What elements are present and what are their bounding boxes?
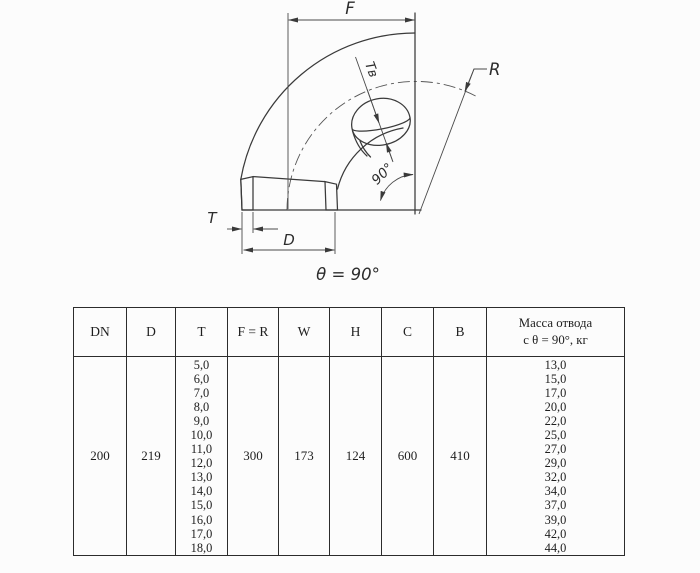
list-item: 39,0 [487, 513, 624, 527]
elbow-drawing: F R T D Tв 90° θ = 90° [0, 0, 700, 295]
left-wall-section [241, 177, 253, 210]
col-header-c: C [382, 308, 434, 357]
f-dimension-label: F [345, 0, 355, 18]
list-item: 6,0 [176, 372, 227, 386]
col-header-b: B [434, 308, 487, 357]
list-item: 22,0 [487, 414, 624, 428]
tv-arrow-upper [367, 89, 379, 123]
outer-arc [241, 33, 415, 179]
d-dimension-label: D [283, 231, 295, 249]
dimensions-table: DN D T F = R W H C B Масса отвода с θ = … [73, 307, 625, 556]
cell-d: 219 [127, 357, 176, 556]
elbow-spec-sheet: F R T D Tв 90° θ = 90° [0, 0, 700, 573]
list-item: 37,0 [487, 498, 624, 512]
stub-top-edge [253, 177, 325, 182]
list-item: 13,0 [487, 358, 624, 372]
table-row: 200 219 5,06,07,08,09,010,011,012,013,01… [74, 357, 625, 556]
list-item: 13,0 [176, 470, 227, 484]
list-item: 17,0 [487, 386, 624, 400]
list-item: 11,0 [176, 442, 227, 456]
col-header-dn: DN [74, 308, 127, 357]
list-item: 27,0 [487, 442, 624, 456]
t-dimension-label: T [207, 209, 218, 227]
cell-t-values: 5,06,07,08,09,010,011,012,013,014,015,01… [176, 357, 228, 556]
tv-dimension-label: Tв [361, 60, 380, 80]
col-header-h: H [330, 308, 382, 357]
list-item: 20,0 [487, 400, 624, 414]
cell-dn: 200 [74, 357, 127, 556]
col-header-fr: F = R [228, 308, 279, 357]
list-item: 7,0 [176, 386, 227, 400]
list-item: 14,0 [176, 484, 227, 498]
mass-header-line2: с θ = 90°, кг [487, 332, 624, 349]
list-item: 29,0 [487, 456, 624, 470]
list-item: 12,0 [176, 456, 227, 470]
list-item: 5,0 [176, 358, 227, 372]
header-row: DN D T F = R W H C B Масса отвода с θ = … [74, 308, 625, 357]
list-item: 18,0 [176, 541, 227, 555]
list-item: 9,0 [176, 414, 227, 428]
list-item: 8,0 [176, 400, 227, 414]
list-item: 44,0 [487, 541, 624, 555]
list-item: 32,0 [487, 470, 624, 484]
cell-fr: 300 [228, 357, 279, 556]
list-item: 16,0 [176, 513, 227, 527]
theta-caption: θ = 90° [316, 265, 380, 284]
elbow-geometry [241, 13, 476, 214]
col-header-mass: Масса отвода с θ = 90°, кг [487, 308, 625, 357]
list-item: 42,0 [487, 527, 624, 541]
r-leader-line [419, 69, 487, 214]
cell-b: 410 [434, 357, 487, 556]
t-values-list: 5,06,07,08,09,010,011,012,013,014,015,01… [176, 357, 227, 555]
list-item: 34,0 [487, 484, 624, 498]
r-leader-arrow [465, 69, 474, 91]
angle-label: 90° [369, 160, 397, 188]
cell-mass-values: 13,015,017,020,022,025,027,029,032,034,0… [487, 357, 625, 556]
col-header-d: D [127, 308, 176, 357]
mass-values-list: 13,015,017,020,022,025,027,029,032,034,0… [487, 357, 624, 555]
list-item: 15,0 [176, 498, 227, 512]
list-item: 15,0 [487, 372, 624, 386]
tv-arrow-lower [386, 143, 392, 161]
cell-w: 173 [279, 357, 330, 556]
list-item: 17,0 [176, 527, 227, 541]
list-item: 25,0 [487, 428, 624, 442]
mass-header-line1: Масса отвода [487, 315, 624, 332]
r-dimension-label: R [489, 60, 500, 79]
cell-h: 124 [330, 357, 382, 556]
cell-c: 600 [382, 357, 434, 556]
col-header-w: W [279, 308, 330, 357]
list-item: 10,0 [176, 428, 227, 442]
col-header-t: T [176, 308, 228, 357]
right-wall-section [325, 182, 338, 210]
